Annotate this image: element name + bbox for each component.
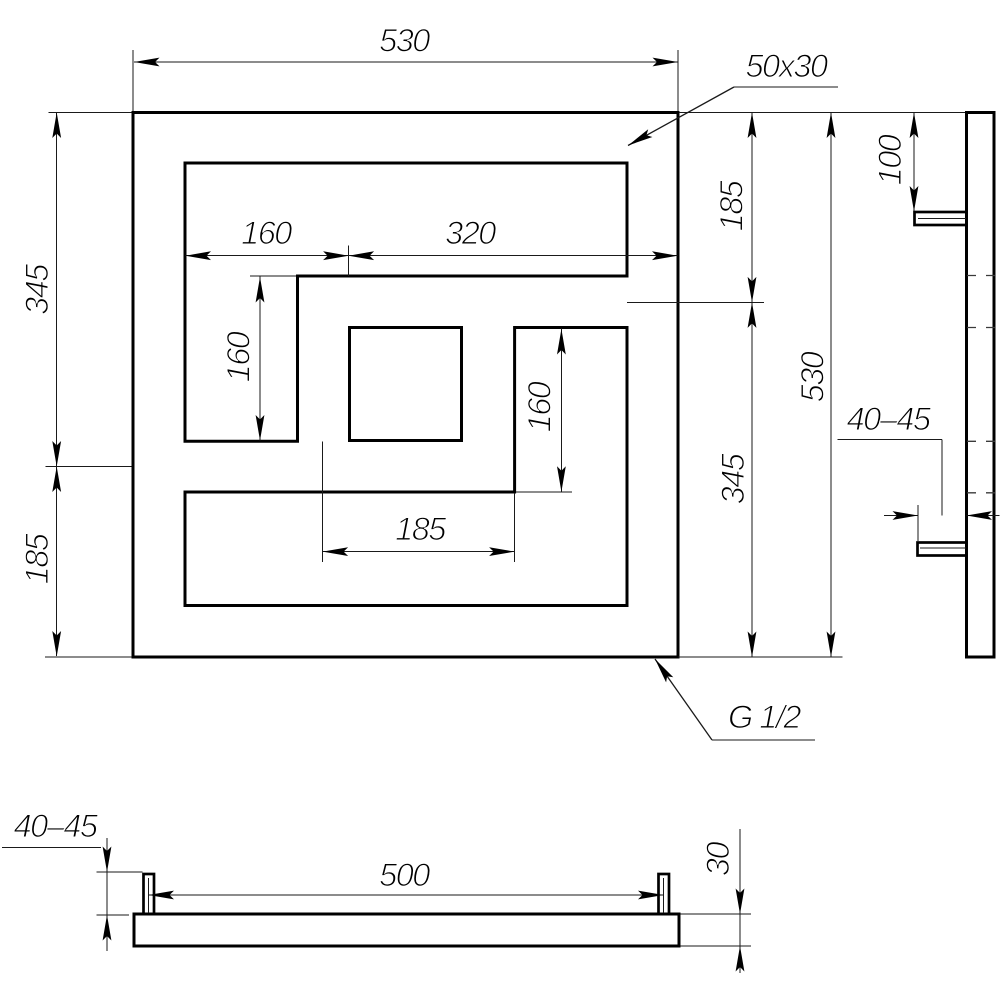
svg-text:185: 185 — [19, 532, 55, 584]
svg-text:345: 345 — [715, 452, 751, 504]
svg-text:40–45: 40–45 — [847, 401, 932, 437]
svg-text:30: 30 — [700, 842, 736, 877]
svg-text:185: 185 — [714, 179, 750, 231]
svg-text:530: 530 — [795, 351, 831, 402]
svg-text:185: 185 — [395, 511, 447, 547]
svg-text:320: 320 — [445, 215, 496, 251]
svg-text:160: 160 — [241, 215, 292, 251]
svg-text:40–45: 40–45 — [14, 808, 99, 844]
svg-text:530: 530 — [379, 23, 430, 59]
svg-text:50x30: 50x30 — [745, 48, 827, 84]
svg-text:G 1/2: G 1/2 — [728, 699, 801, 735]
svg-text:160: 160 — [522, 381, 558, 432]
svg-text:100: 100 — [872, 134, 908, 185]
svg-text:345: 345 — [19, 263, 55, 315]
svg-text:500: 500 — [379, 857, 430, 893]
svg-text:160: 160 — [221, 331, 257, 382]
